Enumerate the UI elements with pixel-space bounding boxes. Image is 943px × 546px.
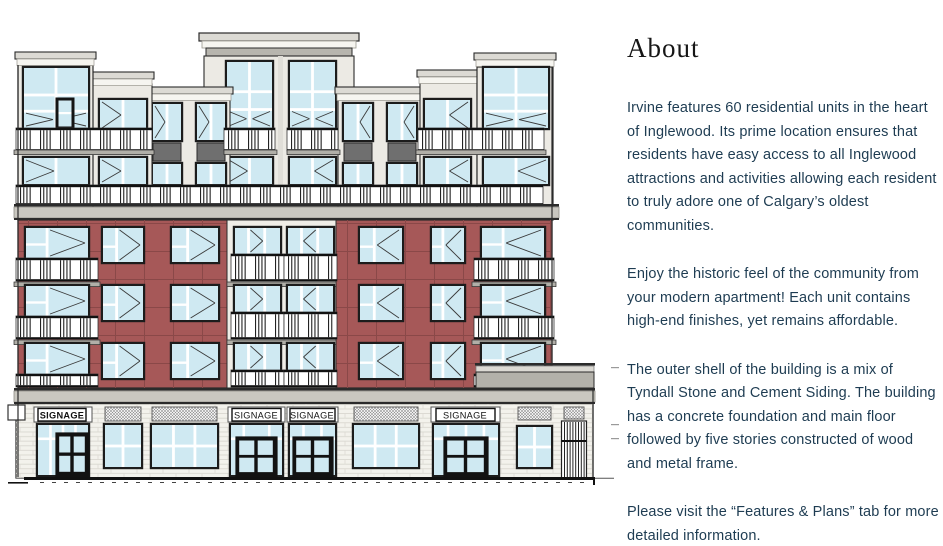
building-elevation-drawing: SIGNAGESIGNAGESIGNAGESIGNAGE: [0, 0, 622, 546]
about-paragraph: The outer shell of the building is a mix…: [627, 359, 940, 477]
about-paragraph: Irvine features 60 residential units in …: [627, 97, 940, 238]
about-paragraph: Enjoy the historic feel of the community…: [627, 263, 940, 334]
signage-label: SIGNAGE: [40, 410, 84, 420]
page: SIGNAGESIGNAGESIGNAGESIGNAGE About Irvin…: [0, 0, 943, 546]
signage-label: SIGNAGE: [443, 410, 487, 420]
about-heading: About: [627, 33, 940, 64]
building-geometry: SIGNAGESIGNAGESIGNAGESIGNAGE: [8, 33, 619, 485]
signage-label: SIGNAGE: [234, 410, 278, 420]
about-paragraph: Please visit the “Features & Plans” tab …: [627, 501, 940, 546]
about-section: About Irvine features 60 residential uni…: [627, 33, 940, 546]
signage-label: SIGNAGE: [290, 410, 334, 420]
